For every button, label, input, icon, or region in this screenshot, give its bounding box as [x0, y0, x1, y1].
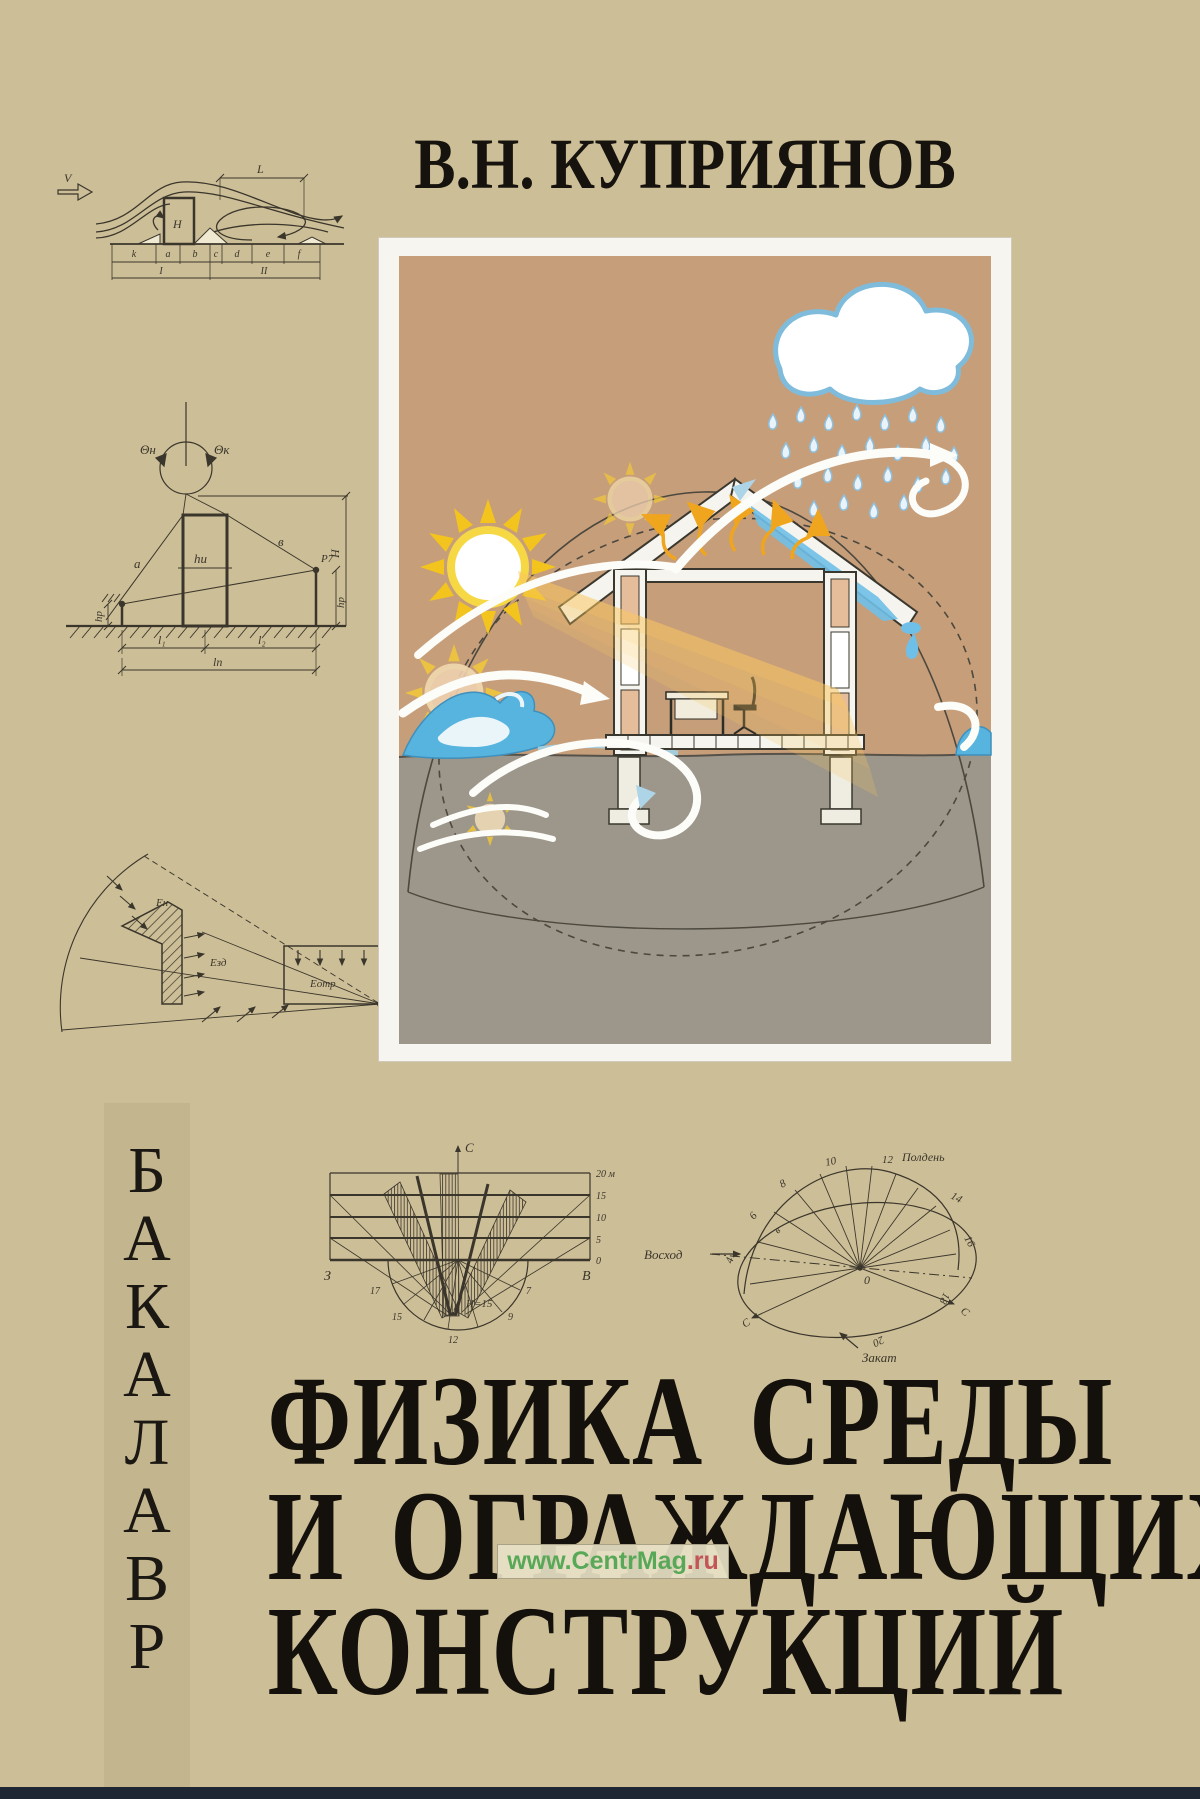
watermark-tld: .ru: [687, 1547, 719, 1576]
shadow-geometry-diagram: Θн Θк а в Р7 hи hр hр l₁ l₂ lп Н: [48, 396, 352, 688]
south-label: С: [740, 1316, 753, 1330]
book-title: ФИЗИКА СРЕДЫ И ОГРАЖДАЮЩИХ КОНСТРУКЦИЙ: [150, 1364, 1130, 1709]
hour-label: 15: [392, 1312, 402, 1323]
hour-label: 7: [526, 1286, 532, 1297]
hour-label: 14: [949, 1190, 965, 1206]
scale-label: 0: [596, 1256, 601, 1267]
ray-a-label: а: [134, 556, 141, 571]
len1-label: l₁: [158, 633, 166, 647]
title-line-1: ФИЗИКА СРЕДЫ: [268, 1364, 1013, 1479]
theta-start-label: Θн: [140, 442, 156, 457]
zone-label: a: [166, 249, 171, 260]
scale-label: 5: [596, 1235, 601, 1246]
sunrise-label: Восход: [644, 1247, 683, 1262]
scale-label: 15: [596, 1191, 606, 1202]
hour-label: 17: [370, 1286, 381, 1297]
scale-label: 10: [596, 1213, 606, 1224]
hour-label: 4: [723, 1256, 736, 1265]
wind-velocity-label: V: [64, 171, 73, 185]
noon-hour-label: 12: [882, 1154, 894, 1166]
hour-label: 6: [747, 1210, 760, 1222]
spine-letter: К: [104, 1273, 190, 1341]
wind-flow-diagram: V L H k a b c d e f I II: [52, 160, 348, 288]
zone-label: c: [214, 249, 219, 260]
spine-letter: Б: [104, 1137, 190, 1205]
environment-illustration: [378, 237, 1012, 1062]
height-note: H=15: [465, 1298, 493, 1310]
len2-label: l₂: [258, 633, 266, 647]
author-name: В.Н. КУПРИЯНОВ: [255, 124, 1115, 204]
illuminance-diagram: Ен Езд Еотр М: [52, 846, 392, 1036]
zone-label: k: [132, 249, 137, 260]
building-illuminance-label: Езд: [209, 957, 227, 969]
hour-label: 10: [824, 1155, 838, 1169]
south-label: С: [958, 1305, 972, 1319]
east-label: В: [582, 1269, 591, 1284]
wind-height-label: H: [172, 217, 183, 231]
store-watermark: www.CentrMag.ru: [497, 1544, 729, 1579]
sky-illuminance-label: Ен: [155, 897, 169, 909]
len-total-label: lп: [213, 655, 222, 669]
bottom-edge-bar: [0, 1787, 1200, 1799]
insolation-chart: С 20 м 15 10 5 0 З В 17 15 12 9 7 H=15: [320, 1132, 630, 1347]
spine-letter: А: [104, 1205, 190, 1273]
center-label: 0: [864, 1273, 870, 1287]
west-label: З: [324, 1269, 331, 1284]
theta-end-label: Θк: [214, 442, 230, 457]
hour-label: 18: [936, 1291, 952, 1306]
hour-label: 9: [508, 1312, 513, 1323]
wind-span-label: L: [256, 162, 264, 176]
title-line-3: КОНСТРУКЦИЙ: [268, 1594, 1013, 1709]
scale-label: 20 м: [596, 1169, 616, 1180]
book-cover: В.Н. КУПРИЯНОВ: [0, 0, 1200, 1799]
h-right-label: hр: [335, 597, 347, 609]
zone-label: f: [298, 249, 302, 260]
hour-label: 20: [870, 1333, 885, 1349]
hour-label: 12: [448, 1335, 458, 1346]
sun-faded-east: [593, 462, 668, 537]
east-point-label: в: [772, 1225, 783, 1236]
reflected-illuminance-label: Еотр: [309, 978, 336, 990]
section-label: II: [260, 266, 268, 277]
zone-label: e: [266, 249, 271, 260]
h-center-label: hи: [194, 551, 208, 566]
sun-path-chart: Восход Закат 12 Полдень 4 6 8 10 14 16 1…: [632, 1142, 1060, 1370]
section-label: I: [158, 266, 163, 277]
hour-label: 8: [778, 1177, 789, 1190]
zone-label: b: [193, 249, 198, 260]
watermark-domain: www.CentrMag: [507, 1547, 687, 1576]
noon-label: Полдень: [901, 1150, 945, 1164]
h-left-label: hр: [93, 611, 105, 623]
north-label: С: [465, 1140, 474, 1155]
ray-b-label: в: [278, 534, 284, 549]
zone-label: d: [235, 249, 241, 260]
total-height-label: Н: [328, 548, 342, 559]
